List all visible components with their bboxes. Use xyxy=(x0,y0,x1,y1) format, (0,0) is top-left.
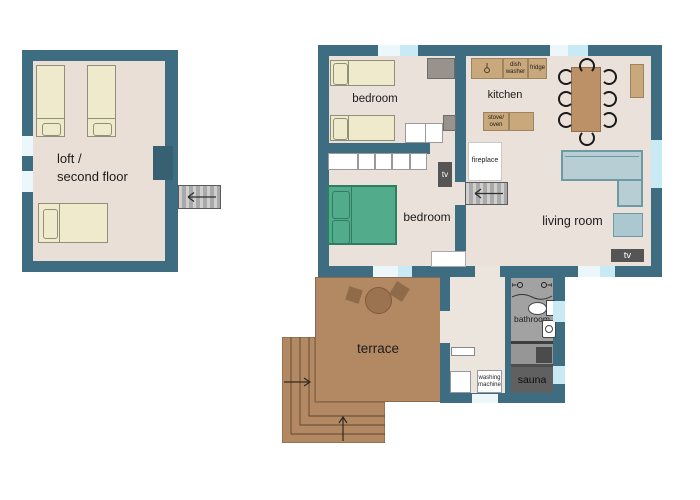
bed-pillow xyxy=(43,209,58,239)
stairs-arrow-left-icon xyxy=(466,183,509,204)
window-bathroom-right xyxy=(553,301,565,322)
terrace-label: terrace xyxy=(336,341,420,356)
bed-foot-line xyxy=(88,118,115,119)
window-sauna-right xyxy=(553,366,565,384)
bathroom-sink xyxy=(542,320,556,338)
living-room-stairs xyxy=(465,182,508,205)
closet-cell xyxy=(328,153,358,170)
loft-single-bed-2 xyxy=(87,65,116,137)
bed-foot-line xyxy=(37,118,64,119)
floor-plan: loft / second floor bedroom tv xyxy=(0,0,700,500)
kitchen-counter-2 xyxy=(509,112,534,131)
loft-label: loft / second floor xyxy=(57,150,167,185)
closet-row xyxy=(328,153,427,170)
bedroom-top-bed-1 xyxy=(330,60,395,86)
shower-head-icon xyxy=(512,281,524,289)
bedroom-main-label: bedroom xyxy=(393,210,461,224)
loft-double-bed xyxy=(38,203,108,243)
sofa-horizontal xyxy=(561,150,643,181)
living-room-label: living room xyxy=(530,214,615,228)
side-table xyxy=(613,213,643,237)
dining-chair xyxy=(558,69,574,85)
doorstep-box xyxy=(431,251,466,267)
kitchen-sink-counter xyxy=(471,58,503,79)
bed-pillow xyxy=(332,191,350,219)
dishwasher-label-line2: washer xyxy=(506,69,525,76)
dining-chair xyxy=(601,69,617,85)
tv-bedroom: tv xyxy=(438,162,452,187)
closet-cell xyxy=(392,153,409,170)
wall-bedroom-kitchen xyxy=(455,56,466,182)
bed-pillow xyxy=(42,123,61,136)
loft-label-line2: second floor xyxy=(57,168,167,186)
fireplace-label: fireplace xyxy=(472,157,498,165)
closet-cell xyxy=(375,153,392,170)
loft-window-lower xyxy=(22,171,33,192)
loft-window-upper xyxy=(22,136,33,156)
washing-machine-label-line1: washing xyxy=(478,375,500,382)
sideboard xyxy=(630,64,644,98)
door-opening-living-hall xyxy=(475,266,500,277)
sauna-label: sauna xyxy=(518,374,547,386)
tv-bedroom-label: tv xyxy=(442,170,448,179)
stove-label-line2: oven xyxy=(489,122,502,129)
door-opening-terrace-hall xyxy=(440,311,450,343)
window-living-bottom-b xyxy=(600,266,615,277)
dresser-divider xyxy=(425,124,426,142)
bed-head-line xyxy=(59,204,60,242)
dining-chair xyxy=(601,112,617,128)
window-bedroom-top-a xyxy=(378,45,400,56)
sofa-back-line xyxy=(565,156,639,157)
window-living-right xyxy=(651,140,662,188)
stove-oven: stove/ oven xyxy=(483,112,509,131)
window-bedroom-bottom-b xyxy=(398,266,412,277)
sink-basin xyxy=(545,325,553,333)
kitchen-label: kitchen xyxy=(481,89,529,101)
shower-head-icon xyxy=(540,281,552,289)
dining-table xyxy=(571,67,601,132)
closet-cell xyxy=(358,153,375,170)
tv-living-label: tv xyxy=(624,250,631,261)
hall-shelf xyxy=(451,347,475,356)
bedroom-top-bed-2 xyxy=(330,115,395,141)
cabinet xyxy=(443,115,456,131)
window-bedroom-bottom-a xyxy=(373,266,398,277)
window-bedroom-top-b xyxy=(400,45,418,56)
fridge-label: fridge xyxy=(530,65,545,72)
window-kitchen-top-a xyxy=(550,45,568,56)
hall-cabinet xyxy=(450,371,471,393)
stove-label-line1: stove/ xyxy=(488,115,504,122)
bed-head-line xyxy=(348,116,349,140)
loft-label-line1: loft / xyxy=(57,150,167,168)
bedroom-top-label: bedroom xyxy=(343,93,407,105)
dishwasher: dish washer xyxy=(503,58,528,79)
double-bed-green xyxy=(327,185,397,245)
fridge: fridge xyxy=(528,58,547,79)
loft-single-bed-1 xyxy=(36,65,65,137)
dining-chair xyxy=(601,91,617,107)
sofa-vertical xyxy=(617,181,643,207)
bed-head-line xyxy=(348,61,349,85)
fireplace: fireplace xyxy=(468,142,502,181)
dining-chair xyxy=(558,112,574,128)
window-hall-bottom xyxy=(472,394,498,403)
faucet-icon xyxy=(483,63,491,74)
dining-chair xyxy=(558,91,574,107)
washing-machine: washing machine xyxy=(477,370,502,393)
stairs-arrow-left-icon xyxy=(179,186,222,208)
dining-chair xyxy=(579,130,595,146)
bed-head-line xyxy=(351,187,352,243)
dining-chair xyxy=(579,58,595,74)
bed-pillow xyxy=(93,123,112,136)
window-living-bottom-a xyxy=(578,266,600,277)
bed-pillow xyxy=(332,220,350,244)
loft-entry-stairs xyxy=(178,185,221,209)
tv-living: tv xyxy=(611,249,644,262)
dishwasher-label-line1: dish xyxy=(510,62,521,69)
washing-machine-label-line2: machine xyxy=(478,382,501,389)
bed-pillow xyxy=(333,63,348,85)
closet-cell xyxy=(410,153,427,170)
bed-pillow xyxy=(333,118,348,140)
sauna-stove xyxy=(536,347,552,363)
terrace-table xyxy=(365,287,392,314)
sauna-floor: sauna xyxy=(511,367,553,393)
window-kitchen-top-b xyxy=(568,45,588,56)
wardrobe xyxy=(427,58,455,79)
dresser xyxy=(405,123,443,143)
